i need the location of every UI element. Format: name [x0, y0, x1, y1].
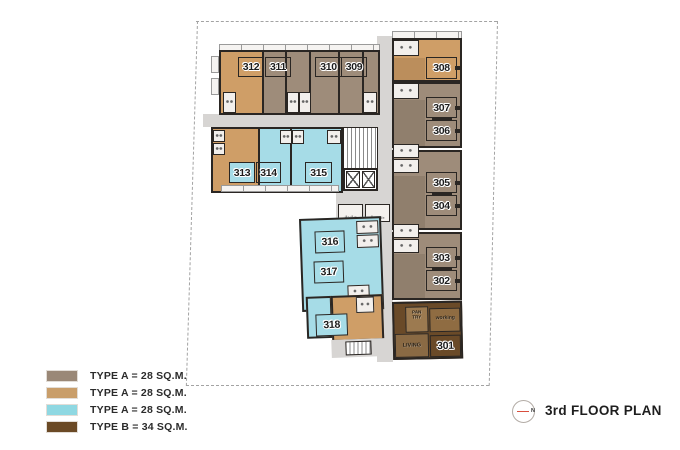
bathroom	[223, 92, 236, 113]
elevator-cab	[362, 171, 376, 188]
unit-301-label: 301	[430, 335, 461, 358]
stairwell-lower	[345, 341, 371, 356]
legend-label: TYPE A = 28 SQ.M.	[90, 387, 187, 399]
unit-316-label: 316	[314, 230, 345, 253]
legend-item: TYPE B = 34 SQ.M.	[46, 420, 188, 434]
bottom-block: 316 317 318	[299, 216, 399, 364]
floor-plan-title: 3rd FLOOR PLAN	[545, 403, 662, 418]
legend-item: TYPE A = 28 SQ.M.	[46, 386, 187, 400]
bathroom	[287, 92, 299, 113]
unit-311-label: 311	[265, 57, 291, 77]
unit-314-label: 314	[256, 162, 281, 183]
legend-label: TYPE A = 28 SQ.M.	[90, 370, 187, 382]
legend-item: TYPE A = 28 SQ.M.	[46, 369, 187, 383]
boundary-line-right	[489, 21, 498, 386]
bathroom	[327, 130, 341, 144]
unit-310-label: 310	[315, 57, 342, 77]
living-label: LIVING	[399, 342, 425, 349]
unit-312-label: 312	[238, 57, 264, 77]
boundary-line-bottom	[186, 385, 489, 386]
unit-307-label: 307	[426, 97, 457, 118]
elevators	[343, 168, 378, 191]
balcony	[211, 78, 219, 95]
bathroom	[393, 83, 419, 99]
unit-interior	[394, 254, 425, 298]
unit-308-label: 308	[426, 57, 457, 79]
north-compass: N	[512, 400, 535, 423]
right-column: 308 307 306 305 304 303 302	[392, 38, 462, 302]
balcony-tick	[455, 129, 461, 133]
unit-interior	[394, 58, 425, 80]
bathroom	[393, 144, 419, 158]
bathroom	[393, 159, 419, 173]
compass-needle-icon	[517, 411, 529, 413]
bathroom	[393, 40, 419, 56]
legend-item: TYPE A = 28 SQ.M.	[46, 403, 187, 417]
elevator-cab	[346, 171, 360, 188]
wall-tick	[432, 117, 452, 120]
unit-interior	[394, 100, 425, 146]
boundary-line-top	[196, 21, 497, 22]
bathroom	[356, 296, 375, 313]
wall-tick	[432, 193, 452, 196]
bathroom	[292, 130, 304, 144]
floor-plan-page: 312 311 310 309 313 314 315 ห้องไฟ ห้องข…	[0, 0, 680, 450]
bathroom	[280, 130, 292, 144]
balcony-tick	[455, 256, 461, 260]
bathroom	[363, 92, 377, 113]
boundary-line-left	[186, 21, 198, 386]
legend-label: TYPE A = 28 SQ.M.	[90, 404, 187, 416]
bathroom	[356, 220, 378, 234]
unit-315-label: 315	[305, 162, 332, 183]
unit-317-label: 317	[313, 260, 344, 283]
legend-swatch-tan	[46, 387, 78, 399]
balcony-tick	[455, 279, 461, 283]
balcony	[211, 56, 219, 73]
unit-305-label: 305	[426, 172, 457, 193]
legend-swatch-cyan	[46, 404, 78, 416]
bathroom	[357, 234, 379, 248]
unit-309-label: 309	[341, 57, 367, 77]
unit-313-label: 313	[229, 162, 255, 183]
wall-tick	[432, 267, 452, 270]
stairwell	[343, 127, 378, 169]
bathroom	[393, 224, 419, 238]
bathroom	[299, 92, 311, 113]
bathroom	[213, 143, 225, 155]
unit-302-label: 302	[426, 270, 457, 291]
unit-306-label: 306	[426, 120, 457, 141]
bathroom	[213, 130, 225, 142]
legend-swatch-taupe	[46, 370, 78, 382]
unit-303-label: 303	[426, 247, 457, 268]
balcony-tick	[455, 66, 461, 70]
balcony-tick	[455, 181, 461, 185]
unit-318-label: 318	[315, 313, 348, 336]
balcony-tick	[455, 204, 461, 208]
unit-interior	[394, 176, 425, 228]
unit-301-block: PAN TRY working LIVING 301	[392, 300, 465, 361]
corridor-horizontal	[203, 114, 392, 127]
balcony-strip-middle-block	[221, 185, 339, 192]
working-label: working	[432, 316, 458, 322]
pantry-label: PAN TRY	[409, 310, 424, 320]
pantry-label-line2: TRY	[412, 314, 421, 319]
unit-304-label: 304	[426, 195, 457, 216]
bathroom	[393, 239, 419, 253]
legend-label: TYPE B = 34 SQ.M.	[90, 421, 188, 433]
legend-swatch-brown	[46, 421, 78, 433]
compass-north-letter: N	[531, 408, 535, 414]
balcony-tick	[455, 106, 461, 110]
